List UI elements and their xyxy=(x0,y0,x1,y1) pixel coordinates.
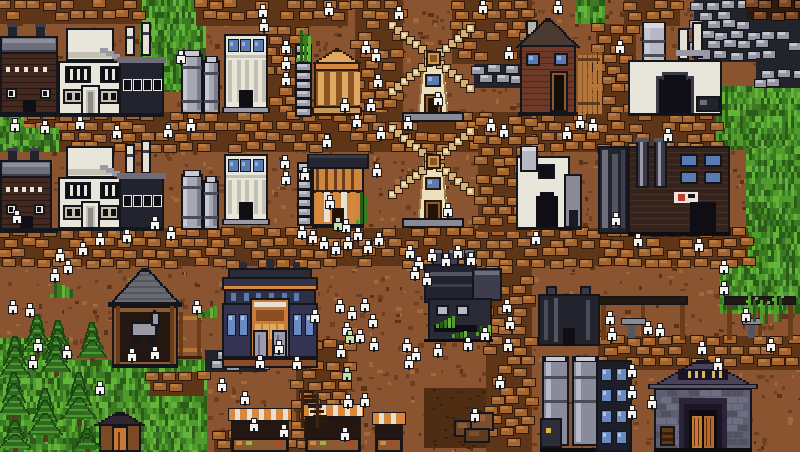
game-canvas[interactable] xyxy=(0,0,800,452)
game-viewport xyxy=(0,0,800,452)
